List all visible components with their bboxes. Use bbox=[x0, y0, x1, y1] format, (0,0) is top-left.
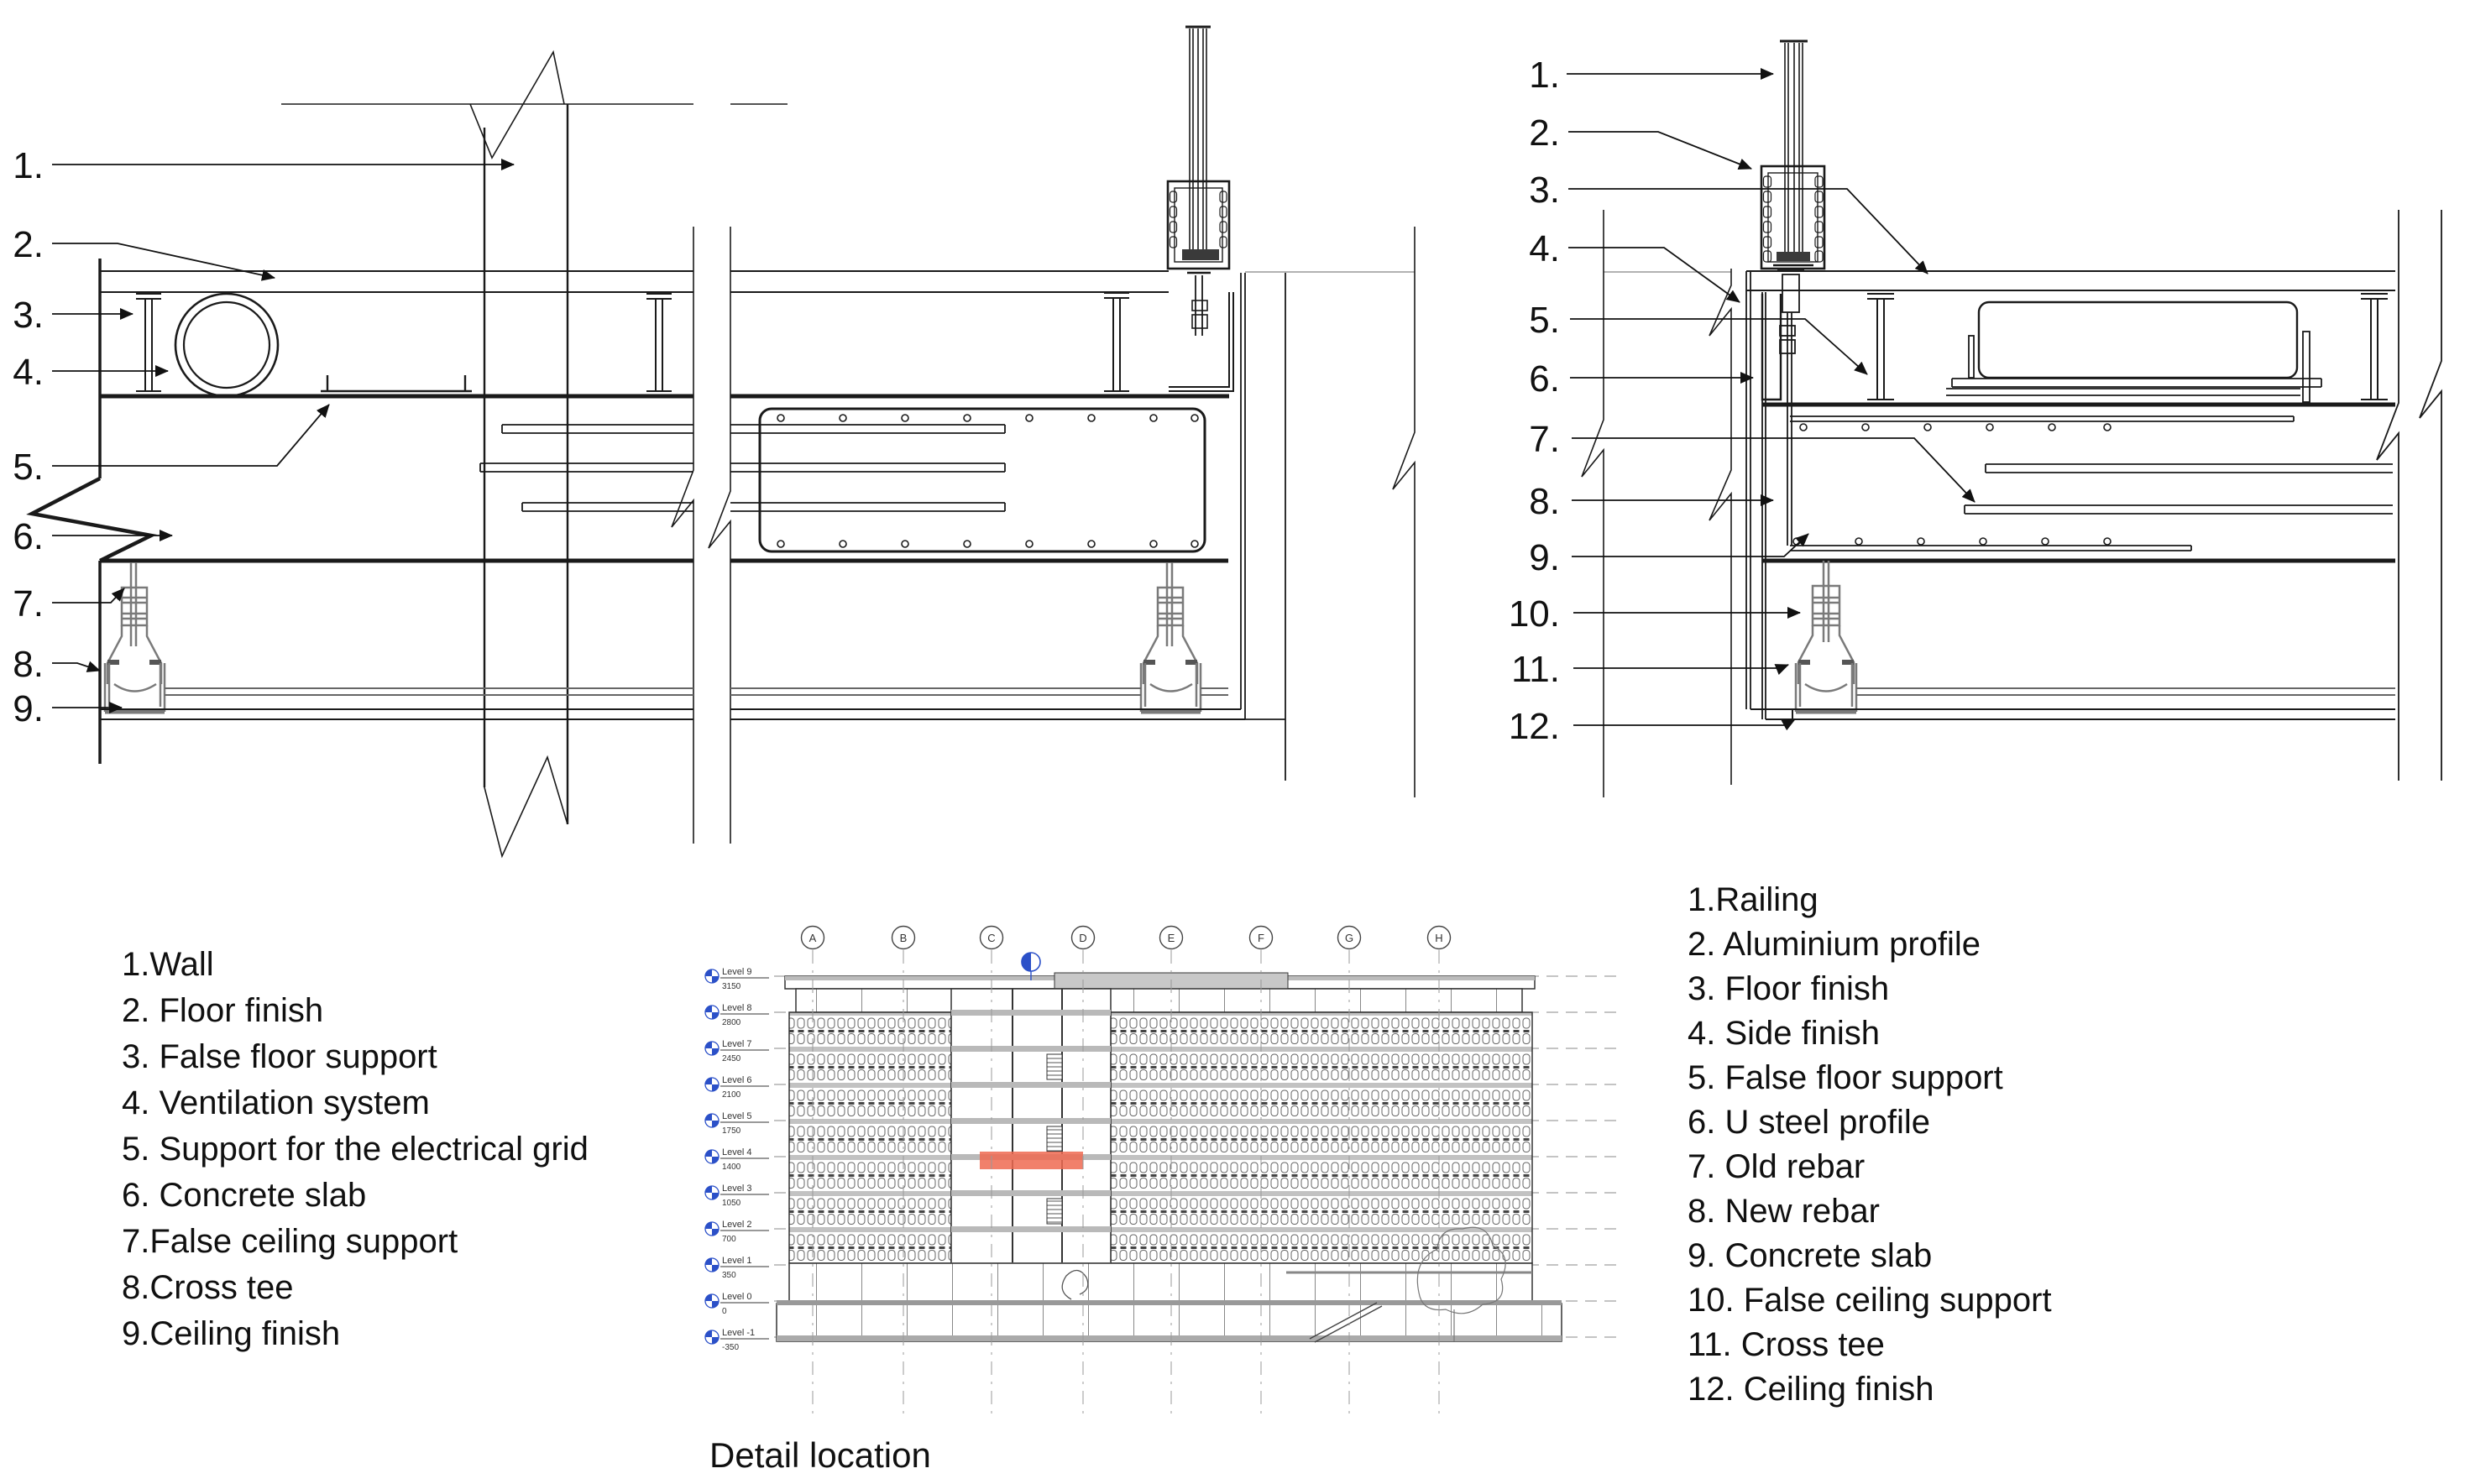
core bbox=[951, 989, 1111, 1304]
left-callout-9: 9. bbox=[13, 688, 44, 729]
level-elevation: 2800 bbox=[722, 1018, 741, 1027]
left-callout-3: 3. bbox=[13, 295, 44, 336]
level-name: Level 6 bbox=[722, 1075, 751, 1085]
ventilation-duct-inner bbox=[184, 302, 270, 388]
right-break-line bbox=[1709, 269, 1731, 785]
legend-right: 1.Railing2. Aluminium profile3. Floor fi… bbox=[1688, 878, 2052, 1412]
left-break-icon bbox=[32, 478, 151, 561]
left-callout-6: 6. bbox=[13, 516, 44, 557]
elevation-caption: Detail location bbox=[709, 1435, 931, 1476]
level-name: Level -1 bbox=[722, 1328, 755, 1338]
right-callout-4: 4. bbox=[1529, 228, 1560, 269]
false-ceiling-hanger-left bbox=[105, 562, 165, 712]
legend-item: 8.Cross tee bbox=[122, 1265, 589, 1311]
legend-item: 3. Floor finish bbox=[1688, 967, 2052, 1011]
level-elevation: 350 bbox=[722, 1271, 736, 1280]
elevation-drawing: Level 93150Level 82800Level 72450Level 6… bbox=[705, 927, 1619, 1421]
legend-item: 4. Side finish bbox=[1688, 1011, 2052, 1056]
level-name: Level 4 bbox=[722, 1147, 751, 1157]
ventilation-duct-outer bbox=[175, 294, 278, 396]
legend-item: 5. False floor support bbox=[1688, 1056, 2052, 1100]
left-callout-8: 8. bbox=[13, 644, 44, 685]
ceiling-finish-left bbox=[100, 709, 1245, 719]
right-callout-1: 1. bbox=[1529, 55, 1560, 96]
right-callout-8: 8. bbox=[1529, 481, 1560, 522]
right-callout-3: 3. bbox=[1529, 170, 1560, 211]
left-callout-1: 1. bbox=[13, 145, 44, 186]
legend-item: 1.Wall bbox=[122, 942, 589, 988]
legend-item: 7. Old rebar bbox=[1688, 1145, 2052, 1189]
right-callout-10: 10. bbox=[1509, 593, 1560, 635]
legend-item: 9.Ceiling finish bbox=[122, 1311, 589, 1357]
mid-break-lines bbox=[672, 227, 730, 844]
detail-sheet: 1. 2. 3. 4. 5. 6. 7. 8. 9. 1. 2. 3. 4. 5… bbox=[0, 0, 2470, 1484]
level-name: Level 1 bbox=[722, 1256, 751, 1266]
new-rebar bbox=[1790, 416, 2294, 551]
level-elevation: 0 bbox=[722, 1307, 727, 1316]
cross-tee-right bbox=[1856, 688, 2395, 695]
false-ceiling-hanger-left-2 bbox=[1141, 562, 1201, 712]
level-name: Level 2 bbox=[722, 1220, 751, 1230]
level-elevation: 3150 bbox=[722, 982, 741, 991]
level-name: Level 7 bbox=[722, 1039, 751, 1049]
rebar-dots-right bbox=[1793, 424, 2111, 545]
rebar-dots bbox=[777, 415, 1198, 547]
right-detail-drawing bbox=[1709, 41, 2441, 785]
legend-item: 10. False ceiling support bbox=[1688, 1278, 2052, 1323]
grid-letter: B bbox=[900, 932, 908, 944]
aluminium-profile-right bbox=[1761, 166, 1824, 269]
level-name: Level 5 bbox=[722, 1111, 751, 1121]
level-elevation: 700 bbox=[722, 1235, 736, 1244]
level-name: Level 9 bbox=[722, 967, 751, 977]
legend-item: 12. Ceiling finish bbox=[1688, 1367, 2052, 1412]
grid-letter: F bbox=[1258, 932, 1264, 944]
cross-tee-left bbox=[165, 688, 1228, 695]
right-callout-5: 5. bbox=[1529, 300, 1560, 341]
old-rebar-bars-left-detail bbox=[480, 425, 1005, 511]
railing-post-left bbox=[1185, 27, 1211, 252]
right-detail-callouts: 1. 2. 3. 4. 5. 6. 7. 8. 9. 10. 11. 12. bbox=[1509, 55, 1560, 747]
level-elevation: 1050 bbox=[722, 1199, 741, 1208]
facade-left-wing bbox=[789, 1012, 951, 1263]
grid-letter: A bbox=[809, 932, 817, 944]
left-callout-7: 7. bbox=[13, 583, 44, 624]
right-callout-7: 7. bbox=[1529, 419, 1560, 460]
left-callout-2: 2. bbox=[13, 224, 44, 265]
legend-item: 11. Cross tee bbox=[1688, 1323, 2052, 1367]
old-rebar-bars bbox=[1965, 464, 2393, 514]
legend-item: 5. Support for the electrical grid bbox=[122, 1126, 589, 1173]
level-name: Level 0 bbox=[722, 1292, 751, 1302]
legend-item: 6. Concrete slab bbox=[122, 1173, 589, 1219]
floor-void-box bbox=[1946, 302, 2321, 402]
right-callout-2: 2. bbox=[1529, 112, 1560, 154]
level-elevation: 2450 bbox=[722, 1054, 741, 1063]
legend-item: 3. False floor support bbox=[122, 1034, 589, 1080]
grid-letter: H bbox=[1435, 932, 1442, 944]
level-elevation: 1400 bbox=[722, 1163, 741, 1172]
false-ceiling-hanger-right bbox=[1796, 561, 1856, 712]
railing-post-right bbox=[1780, 41, 1808, 252]
level-elevation: 2100 bbox=[722, 1090, 741, 1100]
side-finish-lines bbox=[1241, 273, 1285, 719]
facade-right-wing bbox=[1111, 1012, 1532, 1263]
left-detail-drawing bbox=[32, 27, 1285, 856]
legend-item: 9. Concrete slab bbox=[1688, 1234, 2052, 1278]
grid-letter: E bbox=[1168, 932, 1175, 944]
grid-letter: C bbox=[987, 932, 995, 944]
level-name: Level 8 bbox=[722, 1003, 751, 1013]
electrical-grid-support bbox=[321, 375, 472, 395]
left-detail-callouts: 1. 2. 3. 4. 5. 6. 7. 8. 9. bbox=[13, 145, 44, 729]
legend-item: 2. Floor finish bbox=[122, 988, 589, 1034]
legend-left: 1.Wall2. Floor finish3. False floor supp… bbox=[122, 942, 589, 1357]
legend-item: 2. Aluminium profile bbox=[1688, 922, 2052, 967]
right-callout-11: 11. bbox=[1511, 649, 1560, 690]
left-callout-4: 4. bbox=[13, 352, 44, 393]
legend-item: 4. Ventilation system bbox=[122, 1080, 589, 1126]
wall-lines bbox=[484, 104, 568, 824]
level-name: Level 3 bbox=[722, 1184, 751, 1194]
right-callout-9: 9. bbox=[1529, 537, 1560, 578]
grid-letter: G bbox=[1345, 932, 1353, 944]
edge-u-channel bbox=[1169, 292, 1233, 391]
inter-detail-break-lines bbox=[1393, 210, 1604, 797]
wall-break-bottom-icon bbox=[484, 757, 568, 856]
rebar-cage bbox=[760, 409, 1205, 551]
level-elevation: 1750 bbox=[722, 1126, 741, 1136]
right-callout-12: 12. bbox=[1509, 706, 1560, 747]
false-floor-supports bbox=[136, 293, 1129, 396]
legend-item: 8. New rebar bbox=[1688, 1189, 2052, 1234]
legend-item: 7.False ceiling support bbox=[122, 1219, 589, 1265]
legend-item: 1.Railing bbox=[1688, 878, 2052, 922]
floor-finish-right bbox=[1746, 271, 2395, 290]
building bbox=[777, 973, 1562, 1342]
legend-item: 6. U steel profile bbox=[1688, 1100, 2052, 1145]
grid-letter: D bbox=[1079, 932, 1086, 944]
right-callout-6: 6. bbox=[1529, 358, 1560, 400]
ground-floor-glazing bbox=[789, 1263, 1532, 1304]
level-elevation: -350 bbox=[722, 1343, 739, 1352]
detail-highlight bbox=[980, 1152, 1083, 1169]
left-callout-5: 5. bbox=[13, 447, 44, 488]
